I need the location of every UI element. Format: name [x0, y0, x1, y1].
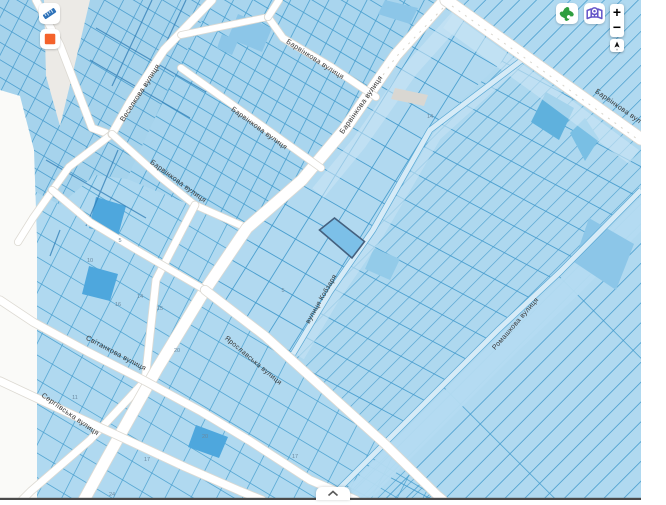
svg-text:16: 16: [115, 302, 121, 308]
svg-text:24: 24: [109, 492, 115, 498]
svg-text:17: 17: [144, 457, 150, 463]
svg-text:5: 5: [118, 238, 121, 244]
svg-text:15: 15: [157, 306, 163, 312]
svg-text:17: 17: [292, 454, 298, 460]
svg-text:11: 11: [72, 395, 78, 401]
svg-text:20: 20: [202, 434, 208, 440]
svg-text:14: 14: [427, 114, 433, 120]
svg-text:10: 10: [87, 258, 93, 264]
svg-text:14: 14: [137, 294, 143, 300]
svg-text:20: 20: [174, 348, 180, 354]
svg-text:5: 5: [281, 288, 284, 294]
